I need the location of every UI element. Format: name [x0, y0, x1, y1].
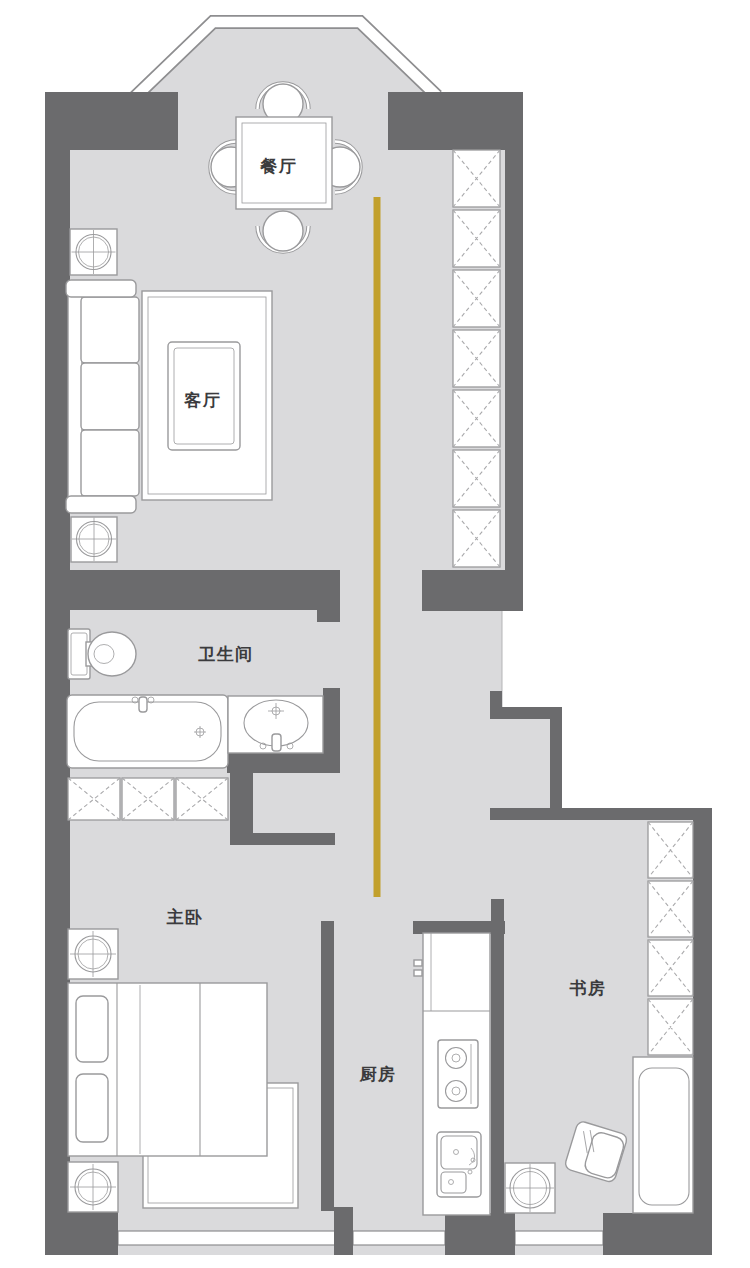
toilet — [68, 629, 136, 679]
plant-stand — [70, 229, 117, 275]
room-label-bathroom: 卫生间 — [198, 643, 254, 666]
kitchen-sink — [437, 1132, 481, 1197]
bathroom-sink — [228, 696, 323, 753]
floor-plan: 餐厅 客厅 卫生间 主卧 厨房 书房 — [0, 0, 750, 1268]
bottom-windows — [118, 1231, 603, 1245]
pillow — [76, 1074, 108, 1142]
double-bed — [68, 983, 267, 1156]
window-kitchen — [353, 1231, 445, 1245]
plant-stand — [71, 517, 117, 562]
room-label-study: 书房 — [570, 977, 607, 1000]
wardrobe-bathroom — [68, 778, 228, 820]
room-label-bedroom: 主卧 — [167, 906, 204, 929]
corridor-axis-line — [374, 197, 381, 897]
wardrobe-hallway — [453, 150, 500, 567]
pillow — [76, 996, 108, 1062]
single-bed — [633, 1057, 693, 1213]
washing-machine — [505, 1163, 555, 1213]
room-label-dining: 餐厅 — [261, 155, 298, 178]
bathtub — [67, 695, 228, 768]
room-label-kitchen: 厨房 — [360, 1063, 397, 1086]
room-label-living: 客厅 — [185, 389, 222, 412]
sofa — [66, 280, 139, 513]
kitchen-counter — [414, 933, 490, 1215]
window-study — [515, 1231, 603, 1245]
stove — [438, 1040, 478, 1108]
nightstand-lamp — [68, 929, 118, 979]
window-bedroom — [118, 1231, 336, 1245]
nightstand-lamp — [68, 1162, 118, 1212]
